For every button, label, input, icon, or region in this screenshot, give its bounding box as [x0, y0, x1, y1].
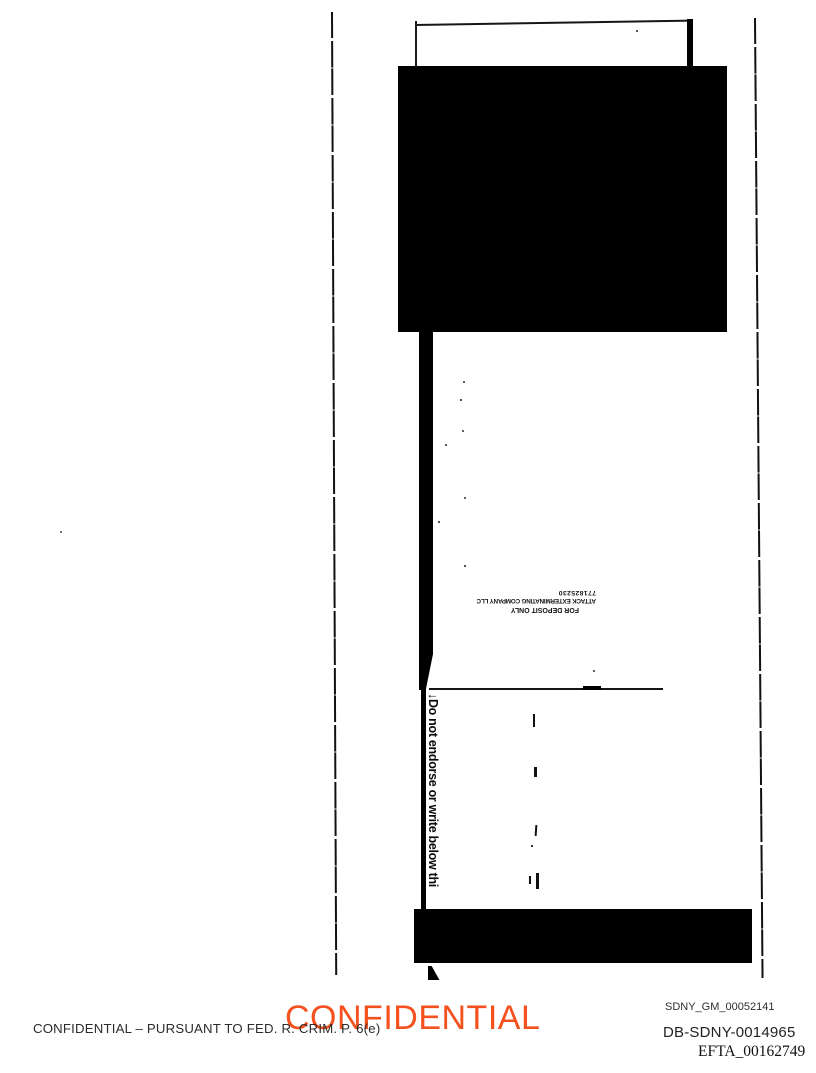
endorsement-warning-text: ↓Do not endorse or write below thi	[427, 693, 440, 911]
scan-speckle	[464, 565, 466, 567]
scan-speckle	[445, 444, 447, 446]
scan-speckle	[438, 521, 440, 523]
scan-speckle	[460, 399, 462, 401]
scan-corner-mark	[428, 966, 441, 980]
scan-edge-line-right	[754, 18, 764, 978]
deposit-stamp-line-3: 771825230	[501, 588, 596, 596]
scan-speckle	[462, 430, 464, 432]
bates-number-sdny-gm: SDNY_GM_00052141	[665, 1001, 774, 1013]
scan-speckle	[593, 670, 595, 672]
deposit-stamp-line-1: FOR DEPOSIT ONLY	[501, 605, 579, 614]
check-outline-right	[687, 19, 693, 66]
check-outline-top	[415, 20, 691, 26]
confidential-legend-text: CONFIDENTIAL – PURSUANT TO FED. R. CRIM.…	[33, 1021, 380, 1036]
endorsement-area-left-bar	[419, 330, 433, 690]
dashed-line-remnant	[534, 767, 537, 777]
endorsement-divider-line	[429, 688, 663, 690]
scan-speckle	[531, 845, 533, 847]
scan-speckle	[463, 381, 465, 383]
endorsement-divider-dash	[583, 686, 601, 690]
check-outline-left	[415, 21, 417, 66]
dashed-line-remnant	[529, 876, 531, 884]
dashed-line-remnant	[535, 825, 538, 836]
redaction-box-bottom	[414, 909, 752, 963]
scanned-document-page: ↓Do not endorse or write below thi FOR D…	[0, 0, 816, 1073]
scan-speckle	[60, 531, 62, 533]
bates-number-db-sdny: DB-SDNY-0014965	[663, 1024, 796, 1041]
scan-speckle	[464, 497, 466, 499]
scan-speckle	[636, 30, 638, 32]
dashed-line-remnant	[533, 714, 535, 727]
redaction-box-top	[398, 66, 727, 332]
dashed-line-remnant	[536, 873, 539, 889]
deposit-stamp-line-2: ATTACK EXTERMINATING COMPANY LLC	[501, 596, 596, 605]
deposit-stamp: FOR DEPOSIT ONLY ATTACK EXTERMINATING CO…	[501, 588, 596, 614]
bates-number-efta: EFTA_00162749	[698, 1043, 805, 1061]
scan-edge-line-left	[331, 12, 337, 975]
endorsement-area-lower-rail	[421, 688, 426, 910]
